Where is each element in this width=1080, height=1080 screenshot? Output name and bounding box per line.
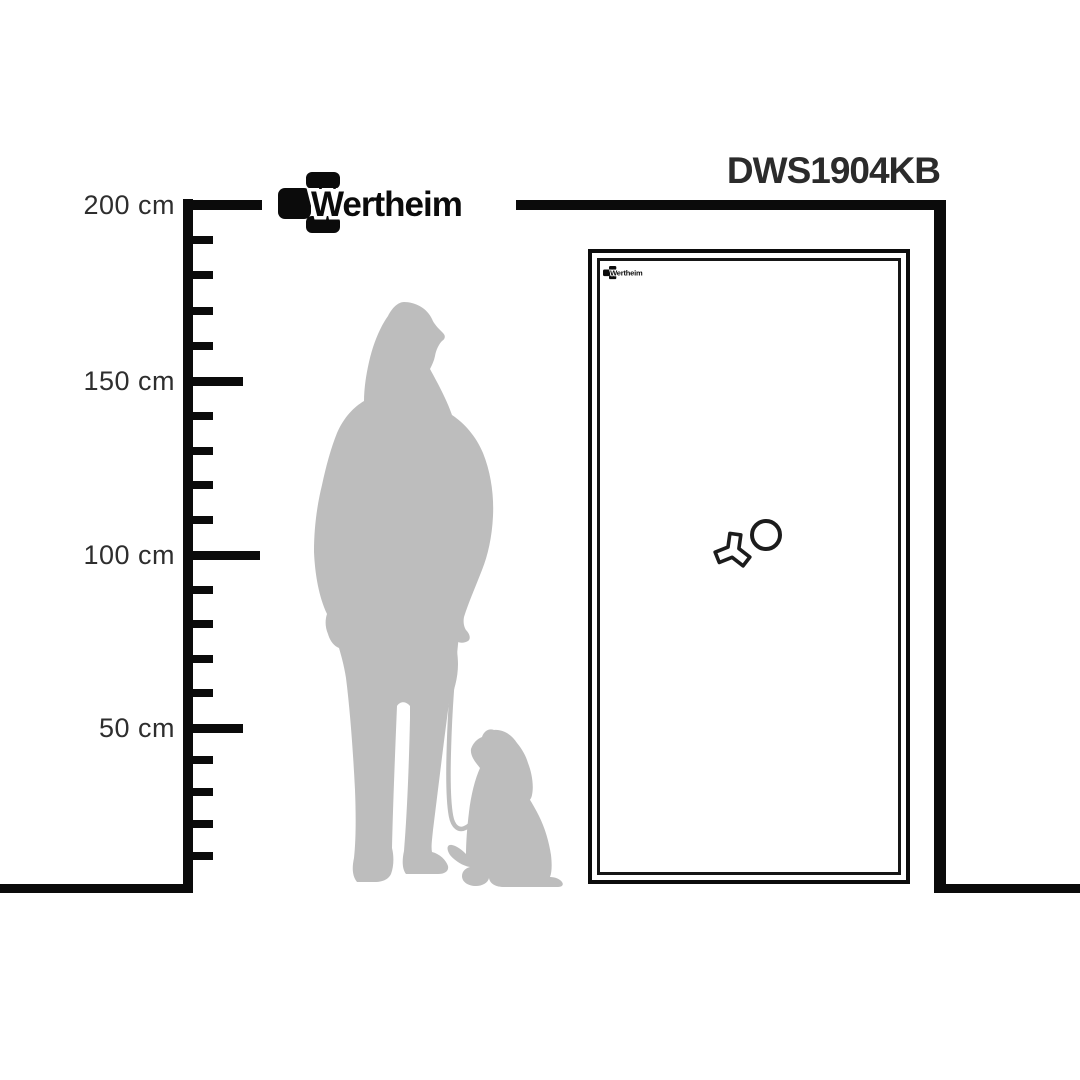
ruler-tick-major bbox=[183, 724, 243, 733]
ruler-label-150: 150 cm bbox=[40, 364, 175, 398]
ruler-tick-minor bbox=[183, 271, 213, 279]
floor-line-right bbox=[934, 884, 1080, 893]
floor-line-left bbox=[0, 884, 193, 893]
safe-door: Wertheim bbox=[588, 249, 910, 884]
round-dial-icon bbox=[752, 521, 780, 549]
ruler-tick-minor bbox=[183, 620, 213, 628]
size-comparison-diagram: 200 cm 150 cm 100 cm 50 cm DWS1904KB Wer… bbox=[0, 0, 1080, 1080]
model-label: DWS1904KB bbox=[727, 150, 940, 192]
ruler-tick-minor bbox=[183, 481, 213, 489]
three-spoke-handle-icon bbox=[714, 532, 753, 567]
right-wall-line bbox=[934, 200, 946, 893]
ruler-tick-minor bbox=[183, 342, 213, 350]
ruler-tick-minor bbox=[183, 756, 213, 764]
logo-wordmark: Wertheim bbox=[610, 268, 643, 277]
ruler-tick-major bbox=[183, 377, 243, 386]
ruler-tick-major bbox=[183, 551, 260, 560]
ruler-tick-minor bbox=[183, 447, 213, 455]
safe-door-logo: Wertheim bbox=[603, 266, 647, 280]
logo-wordmark: Wertheim bbox=[311, 185, 462, 224]
person-and-dog-silhouette bbox=[300, 295, 570, 895]
ruler-tick-minor bbox=[183, 307, 213, 315]
ruler-tick-minor bbox=[183, 516, 213, 524]
ruler-tick-minor bbox=[183, 412, 213, 420]
ruler-tick-major bbox=[183, 200, 262, 210]
ruler-label-200: 200 cm bbox=[40, 188, 175, 222]
logo-block-left bbox=[278, 188, 311, 219]
wertheim-logo: Wertheim bbox=[278, 172, 483, 237]
ruler-tick-minor bbox=[183, 788, 213, 796]
ruler-label-50: 50 cm bbox=[40, 711, 175, 745]
ruler-tick-minor bbox=[183, 655, 213, 663]
safe-hardware bbox=[692, 514, 812, 594]
ruler-tick-minor bbox=[183, 236, 213, 244]
ruler-tick-minor bbox=[183, 586, 213, 594]
ruler-label-100: 100 cm bbox=[40, 538, 175, 572]
person-silhouette bbox=[314, 302, 493, 882]
ruler-tick-minor bbox=[183, 852, 213, 860]
logo-block-left bbox=[603, 269, 610, 276]
ceiling-line bbox=[516, 200, 946, 210]
ruler-tick-minor bbox=[183, 820, 213, 828]
dog-silhouette bbox=[448, 729, 563, 887]
ruler-tick-minor bbox=[183, 689, 213, 697]
